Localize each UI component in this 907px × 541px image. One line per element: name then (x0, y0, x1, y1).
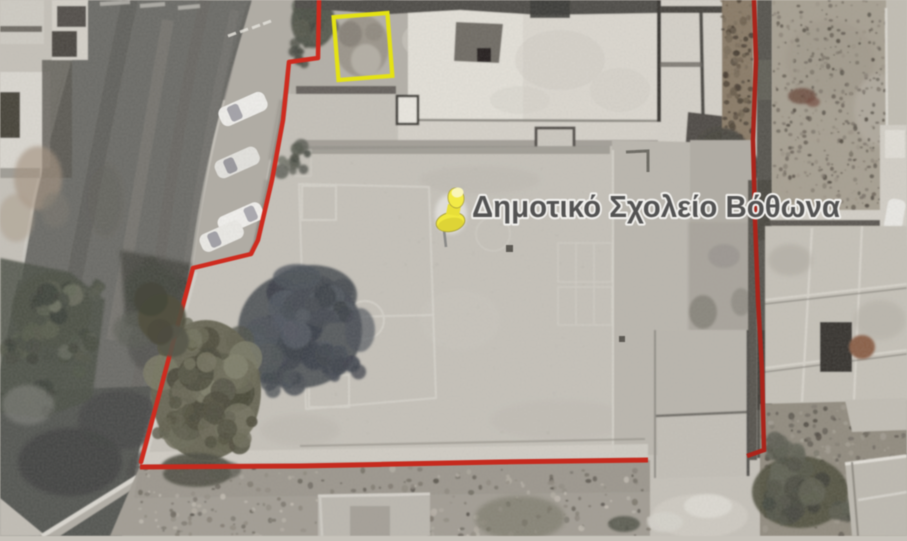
svg-text:Δημοτικό Σχολείο Βόθωνα: Δημοτικό Σχολείο Βόθωνα (472, 189, 840, 224)
